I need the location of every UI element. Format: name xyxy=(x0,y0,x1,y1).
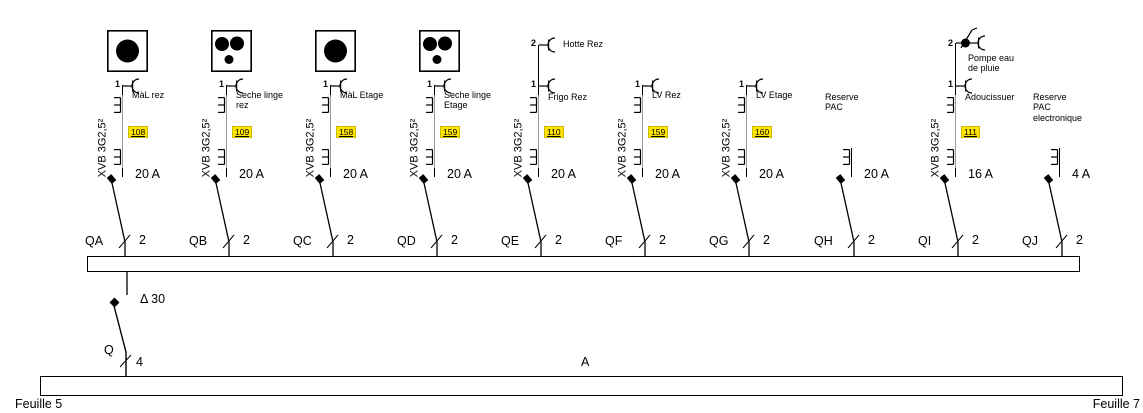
branch-qd: 1 Seche linge Etage 159 XVB 3G2,5² 20 A … xyxy=(395,0,499,262)
cable-marker-icon xyxy=(112,97,122,113)
tumble-dryer-icon xyxy=(419,30,460,72)
sheet-ref-right: Feuille 7 xyxy=(1040,397,1140,411)
cable-marker-icon xyxy=(216,97,226,113)
outlet-count: 1 xyxy=(630,79,640,89)
outlet-label: Seche linge Etage xyxy=(444,90,499,111)
breaker-rating: 20 A xyxy=(239,167,264,181)
outlet-count: 1 xyxy=(526,79,536,89)
breaker-id: QB xyxy=(189,234,207,248)
washing-machine-icon xyxy=(315,30,356,72)
branch-qa: 1 MàL rez 108 XVB 3G2,5² 20 A QA 2 xyxy=(83,0,187,262)
outlet-count: 1 xyxy=(734,79,744,89)
pole-count: 2 xyxy=(451,233,458,247)
breaker-id: QI xyxy=(918,234,931,248)
cable-run xyxy=(434,95,435,168)
main-breaker-symbol xyxy=(100,271,160,377)
differential-rating: Δ 30 xyxy=(140,292,165,306)
pole-count: 2 xyxy=(555,233,562,247)
tumble-dryer-icon xyxy=(211,30,252,72)
breaker-rating: 20 A xyxy=(864,167,889,181)
pole-count: 2 xyxy=(243,233,250,247)
breaker-id: QA xyxy=(85,234,103,248)
circuit-breaker-symbol xyxy=(625,172,655,257)
cable-marker-icon xyxy=(945,149,955,165)
cable-marker-icon xyxy=(841,149,851,165)
circuit-number-link[interactable]: 109 xyxy=(232,126,252,138)
breaker-rating: 4 A xyxy=(1072,167,1090,181)
lower-bus-bar xyxy=(40,376,1123,396)
circuit-number-link[interactable]: 160 xyxy=(752,126,772,138)
outlet-count: 1 xyxy=(943,79,953,89)
pole-count: 2 xyxy=(868,233,875,247)
cable-marker-icon xyxy=(528,149,538,165)
upper-bus-bar xyxy=(87,256,1080,272)
breaker-rating: 20 A xyxy=(343,167,368,181)
breaker-id: QG xyxy=(709,234,728,248)
washing-machine-icon xyxy=(107,30,148,72)
breaker-rating: 20 A xyxy=(551,167,576,181)
socket-outlet-icon xyxy=(539,37,563,55)
outlet-count: 1 xyxy=(110,79,120,89)
cable-run xyxy=(122,95,123,168)
pole-count: 2 xyxy=(139,233,146,247)
circuit-breaker-symbol xyxy=(313,172,343,257)
breaker-id: QJ xyxy=(1022,234,1038,248)
sheet-ref-left: Feuille 5 xyxy=(15,397,62,411)
circuit-breaker-symbol xyxy=(834,172,864,257)
circuit-breaker-symbol xyxy=(729,172,759,257)
cable-run xyxy=(538,95,539,168)
cable-marker-icon xyxy=(424,149,434,165)
branch-qc: 1 MàL Etage 158 XVB 3G2,5² 20 A QC 2 xyxy=(291,0,395,262)
circuit-breaker-symbol xyxy=(417,172,447,257)
breaker-id: QD xyxy=(397,234,416,248)
circuit-number-link[interactable]: 110 xyxy=(544,126,564,138)
cable-run xyxy=(746,95,747,168)
breaker-id: QH xyxy=(814,234,833,248)
breaker-rating: 16 A xyxy=(968,167,993,181)
circuit-number-link[interactable]: 108 xyxy=(128,126,148,138)
branch-qb: 1 Seche linge rez 109 XVB 3G2,5² 20 A QB… xyxy=(187,0,291,262)
pump-switch-icon xyxy=(956,25,994,53)
breaker-rating: 20 A xyxy=(655,167,680,181)
outlet-count: 1 xyxy=(214,79,224,89)
outlet-count: 1 xyxy=(422,79,432,89)
breaker-rating: 20 A xyxy=(135,167,160,181)
cable-marker-icon xyxy=(632,149,642,165)
circuit-number-link[interactable]: 159 xyxy=(440,126,460,138)
cable-marker-icon xyxy=(736,149,746,165)
circuit-breaker-symbol xyxy=(1042,172,1072,257)
cable-run xyxy=(330,95,331,168)
outlet-label: MàL Etage xyxy=(340,90,400,100)
main-breaker-id: Q xyxy=(104,343,114,357)
outlet-count: 1 xyxy=(318,79,328,89)
cable-run xyxy=(955,95,956,168)
circuit-number-link[interactable]: 159 xyxy=(648,126,668,138)
outlet-label: LV Etage xyxy=(756,90,816,100)
cable-run xyxy=(226,95,227,168)
branch-qj: Reserve PAC electronique 4 A QJ 2 xyxy=(1020,0,1124,262)
branch-qf: 1 LV Rez 159 XVB 3G2,5² 20 A QF 2 xyxy=(603,0,707,262)
branch-qi: 2 Pompe eau de pluie 1 Adoucissuer 111 xyxy=(916,0,1020,262)
breaker-rating: 20 A xyxy=(759,167,784,181)
outlet-label: Frigo Rez xyxy=(548,92,608,102)
circuit-breaker-symbol xyxy=(521,172,551,257)
branch-qg: 1 LV Etage 160 XVB 3G2,5² 20 A QG 2 xyxy=(707,0,811,262)
cable-marker-icon xyxy=(528,97,538,113)
cable-marker-icon xyxy=(112,149,122,165)
outlet-label: Pompe eau de pluie xyxy=(968,53,1018,74)
breaker-id: QF xyxy=(605,234,622,248)
cable-marker-icon xyxy=(320,97,330,113)
circuit-breaker-symbol xyxy=(209,172,239,257)
pole-count: 2 xyxy=(763,233,770,247)
outlet-count: 2 xyxy=(943,38,953,48)
branch-qe: 2 Hotte Rez 1 Frigo Rez 110 XVB 3G2,5² 2… xyxy=(499,0,603,262)
pole-count: 2 xyxy=(1076,233,1083,247)
cable-marker-icon xyxy=(320,149,330,165)
pole-count: 2 xyxy=(659,233,666,247)
reserve-label: Reserve PAC xyxy=(825,92,867,113)
cable-marker-icon xyxy=(945,97,955,113)
electrical-one-line-diagram: 1 MàL rez 108 XVB 3G2,5² 20 A QA 2 xyxy=(0,0,1143,413)
cable-marker-icon xyxy=(632,97,642,113)
breaker-rating: 20 A xyxy=(447,167,472,181)
outlet-count: 2 xyxy=(526,38,536,48)
cable-marker-icon xyxy=(216,149,226,165)
outlet-label: Seche linge rez xyxy=(236,90,291,111)
circuit-number-link[interactable]: 158 xyxy=(336,126,356,138)
cable-marker-icon xyxy=(1049,149,1059,165)
circuit-number-link[interactable]: 111 xyxy=(961,126,980,138)
cable-run xyxy=(642,95,643,168)
outlet-label: LV Rez xyxy=(652,90,712,100)
lower-bus-label: A xyxy=(581,355,589,369)
circuit-breaker-symbol xyxy=(105,172,135,257)
outlet-label: MàL rez xyxy=(132,90,187,100)
pole-count: 2 xyxy=(347,233,354,247)
cable-marker-icon xyxy=(424,97,434,113)
reserve-label: Reserve PAC electronique xyxy=(1033,92,1085,123)
main-pole-count: 4 xyxy=(136,355,143,369)
cable-marker-icon xyxy=(736,97,746,113)
pole-count: 2 xyxy=(972,233,979,247)
breaker-id: QE xyxy=(501,234,519,248)
circuit-breaker-symbol xyxy=(938,172,968,257)
breaker-id: QC xyxy=(293,234,312,248)
branch-qh: Reserve PAC 20 A QH 2 xyxy=(812,0,916,262)
